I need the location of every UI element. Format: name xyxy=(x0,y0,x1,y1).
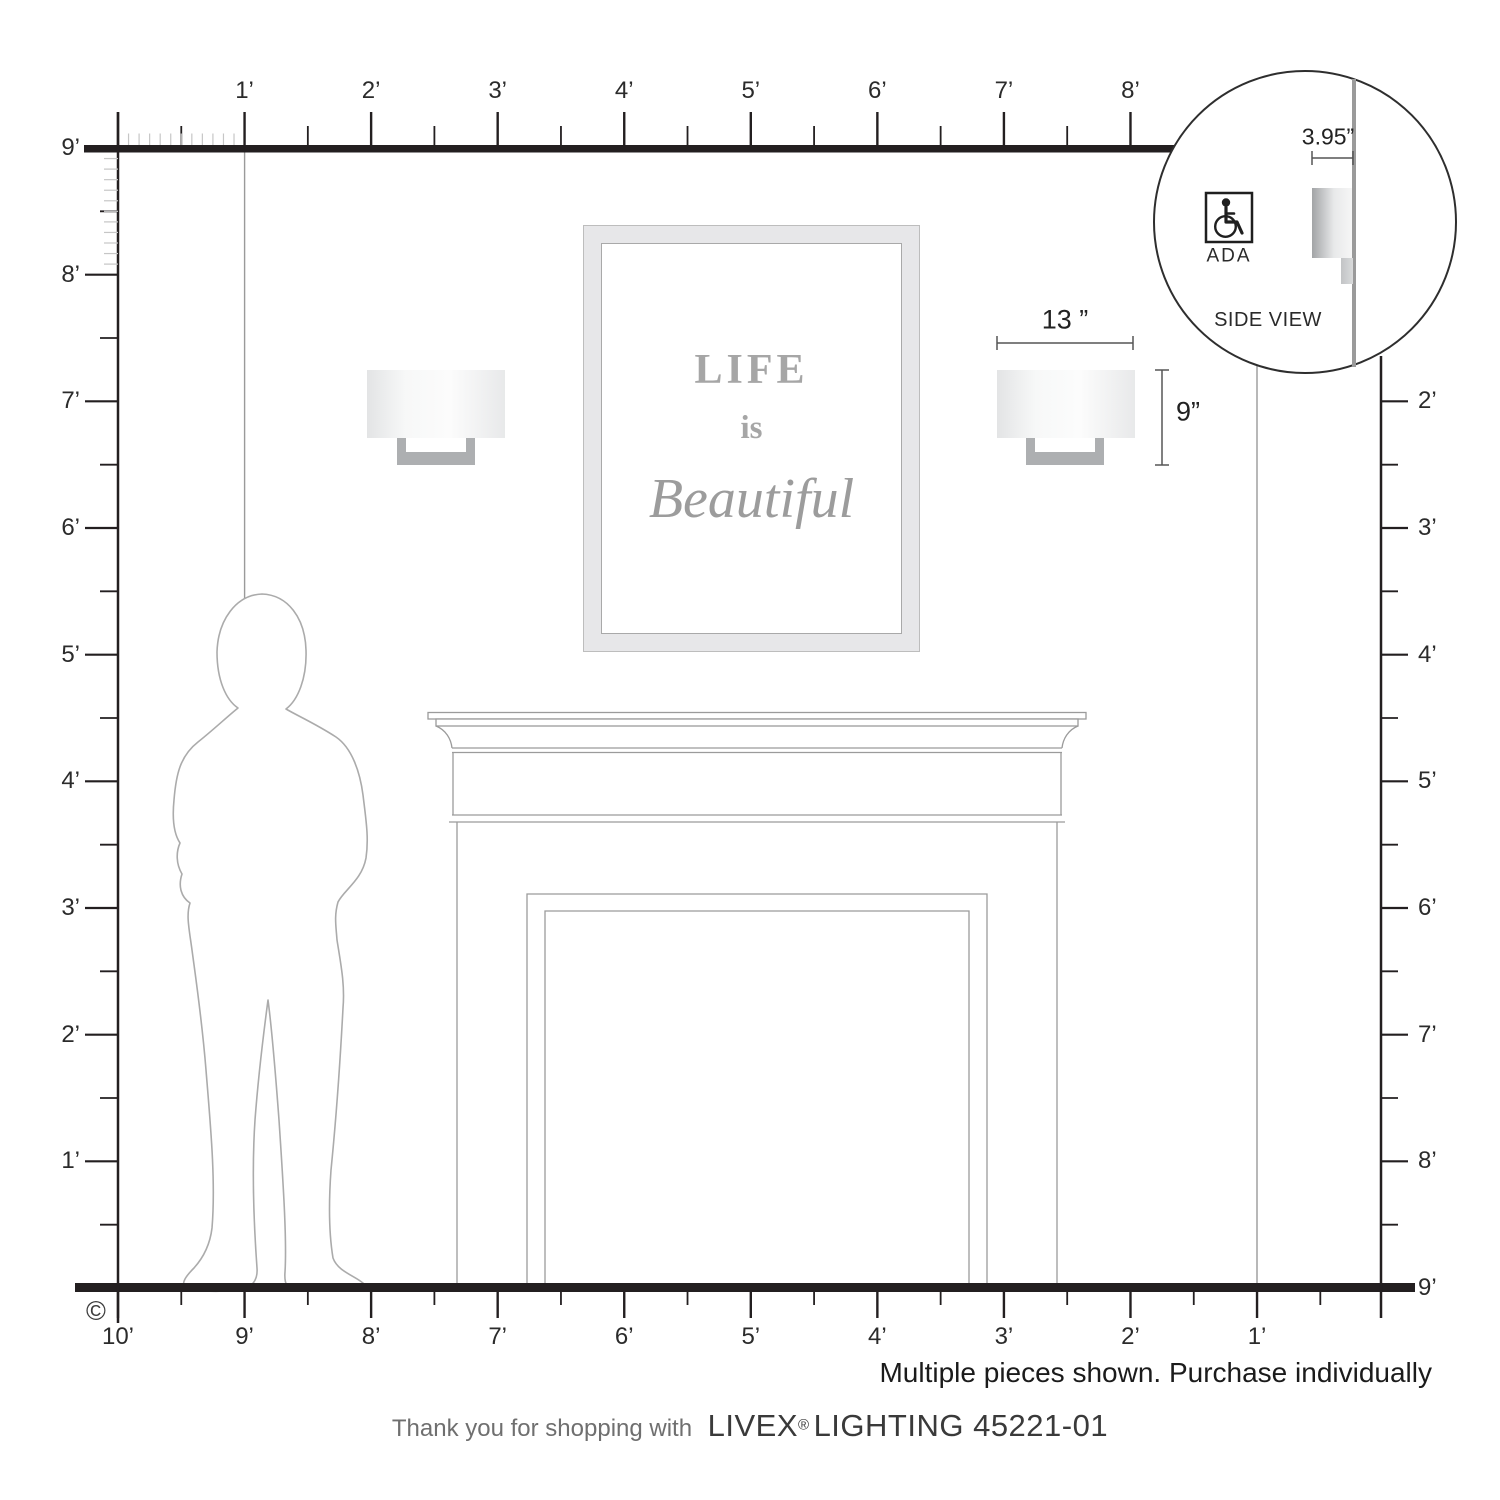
inset-sconce-side-bracket xyxy=(1341,258,1353,284)
picture-frame-matte: LIFE is Beautiful xyxy=(601,243,902,634)
ruler-label: 6’ xyxy=(20,516,80,540)
ruler-label: 7’ xyxy=(995,79,1014,103)
ruler-label: 7’ xyxy=(488,1325,507,1349)
artwork-line1: LIFE xyxy=(694,346,808,394)
ruler-label: 8’ xyxy=(20,263,80,287)
product-dimension-diagram: LIFE is Beautiful 13 ” 9” 3.95” SIDE VIE… xyxy=(0,0,1500,1500)
ceiling-ruler-bar xyxy=(84,145,1178,153)
artwork-line2: is xyxy=(740,410,762,447)
ruler-label: 9’ xyxy=(20,136,80,160)
ruler-label: 1’ xyxy=(235,79,254,103)
ruler-label: 8’ xyxy=(1418,1149,1437,1173)
ruler-label: 7’ xyxy=(1418,1023,1437,1047)
ruler-label: 3’ xyxy=(488,79,507,103)
ruler-label: 3’ xyxy=(20,896,80,920)
ruler-label: 4’ xyxy=(868,1325,887,1349)
ruler-label: 5’ xyxy=(741,1325,760,1349)
ada-badge xyxy=(1206,193,1252,242)
left-sconce-shade xyxy=(367,370,505,438)
ruler-label: 7’ xyxy=(20,389,80,413)
picture-frame: LIFE is Beautiful xyxy=(583,225,920,652)
ruler-label: 2’ xyxy=(362,79,381,103)
height-dimension-line xyxy=(1155,370,1169,465)
purchase-note: Multiple pieces shown. Purchase individu… xyxy=(879,1357,1432,1389)
ruler-label: 1’ xyxy=(20,1149,80,1173)
height-dimension-label: 9” xyxy=(1176,399,1200,426)
footer-prefix: Thank you for shopping with xyxy=(392,1415,692,1442)
right-sconce xyxy=(997,370,1135,465)
ruler-label: 2’ xyxy=(1121,1325,1140,1349)
right-sconce-bracket xyxy=(1026,438,1104,465)
ruler-label: 5’ xyxy=(741,79,760,103)
ruler-label: 4’ xyxy=(615,79,634,103)
width-dimension-label: 13 ” xyxy=(1042,307,1089,334)
ruler-label: 9’ xyxy=(235,1325,254,1349)
ruler-label: 1’ xyxy=(1248,1325,1267,1349)
artwork-line3: Beautiful xyxy=(649,467,854,531)
brand-suffix: LIGHTING 45221-01 xyxy=(814,1408,1109,1443)
footer-text: Thank you for shopping with LIVEX® LIGHT… xyxy=(0,1408,1500,1444)
ruler-label: 3’ xyxy=(1418,516,1437,540)
side-view-title: SIDE VIEW xyxy=(1214,310,1322,330)
width-dimension-line xyxy=(997,336,1133,350)
ruler-label: 5’ xyxy=(20,643,80,667)
registered-mark: ® xyxy=(798,1417,809,1434)
floor-ruler-bar xyxy=(75,1283,1415,1292)
ruler-label: 9’ xyxy=(1418,1276,1437,1300)
ruler-label: 4’ xyxy=(1418,643,1437,667)
ada-label: ADA xyxy=(1206,247,1251,266)
ruler-label: 3’ xyxy=(995,1325,1014,1349)
depth-dimension-label: 3.95” xyxy=(1302,126,1354,149)
ruler-label: 8’ xyxy=(1121,79,1140,103)
right-sconce-shade xyxy=(997,370,1135,438)
inset-sconce-side-body xyxy=(1312,188,1352,258)
ruler-label: 10’ xyxy=(102,1325,134,1349)
ruler-label: 2’ xyxy=(1418,389,1437,413)
ruler-label: 8’ xyxy=(362,1325,381,1349)
left-sconce-bracket xyxy=(397,438,475,465)
ruler-label: 6’ xyxy=(1418,896,1437,920)
ruler-label: 2’ xyxy=(20,1023,80,1047)
fireplace-mantel xyxy=(428,713,1086,1284)
left-sconce xyxy=(367,370,505,465)
ruler-label: 6’ xyxy=(868,79,887,103)
brand-name: LIVEX xyxy=(708,1408,798,1443)
ruler-label: 6’ xyxy=(615,1325,634,1349)
ruler-label: 5’ xyxy=(1418,769,1437,793)
ruler-label: 4’ xyxy=(20,769,80,793)
human-figure-silhouette xyxy=(173,594,367,1291)
